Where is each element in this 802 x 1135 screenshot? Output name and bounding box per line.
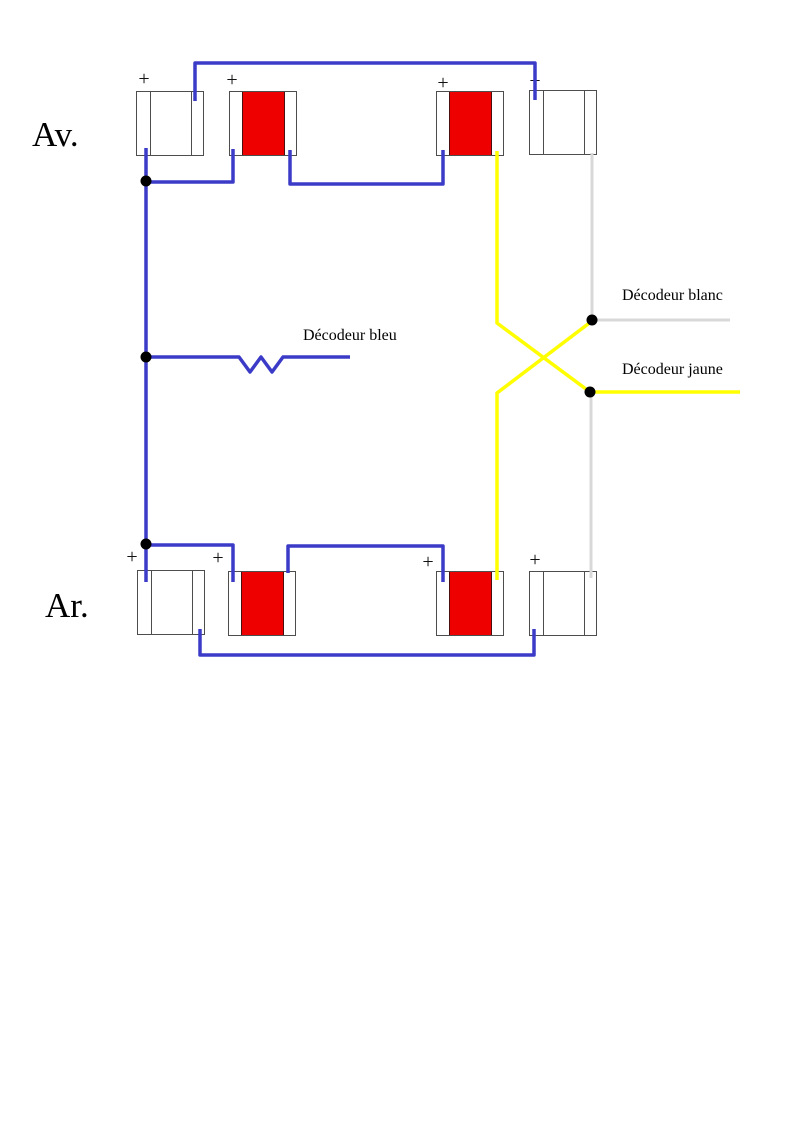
lamp-red-filament — [449, 572, 492, 635]
lamp-front-red-left — [229, 91, 297, 156]
wires-layer — [0, 0, 802, 1135]
plus-mark-front-white-left: + — [138, 69, 149, 89]
lamp-rear-red-left — [228, 571, 296, 636]
wire-rear-red-to-white-junction — [497, 321, 592, 580]
lamp-red-filament — [241, 572, 284, 635]
lamp-rear-red-right — [436, 571, 504, 636]
wiring-diagram: Av. Ar. Décodeur bleu Décodeur blanc Déc… — [0, 0, 802, 1135]
lamp-rear-right-white — [529, 571, 597, 636]
lamp-red-filament — [242, 92, 285, 155]
lamp-terminal-line — [584, 91, 585, 154]
decoder-blue-label: Décodeur bleu — [303, 327, 397, 345]
decoder-white-label: Décodeur blanc — [622, 287, 723, 305]
wire-rear-red-to-red — [288, 546, 443, 582]
plus-mark-rear-white-left: + — [126, 547, 137, 567]
junction-dot-decoder-yellow — [585, 387, 596, 398]
junction-dot-middle — [141, 352, 152, 363]
lamp-terminal-line — [151, 571, 152, 634]
lamp-front-left-white — [136, 91, 204, 156]
lamp-front-red-right — [436, 91, 504, 156]
lamp-terminal-line — [584, 572, 585, 635]
lamp-front-right-white — [529, 90, 597, 155]
plus-mark-front-white-right: + — [529, 71, 540, 91]
lamp-terminal-line — [192, 571, 193, 634]
plus-mark-rear-red-left: + — [212, 548, 223, 568]
wire-decoder-blue-with-resistor — [146, 357, 350, 372]
front-section-label: Av. — [32, 116, 79, 155]
lamp-terminal-line — [191, 92, 192, 155]
lamp-terminal-line — [543, 572, 544, 635]
lamp-rear-left-white — [137, 570, 205, 635]
lamp-terminal-line — [150, 92, 151, 155]
plus-mark-rear-white-right: + — [529, 550, 540, 570]
plus-mark-front-red-right: + — [437, 73, 448, 93]
lamp-red-filament — [449, 92, 492, 155]
junction-dot-front — [141, 176, 152, 187]
lamp-terminal-line — [543, 91, 544, 154]
rear-section-label: Ar. — [45, 587, 89, 626]
plus-mark-rear-red-right: + — [422, 552, 433, 572]
decoder-yellow-label: Décodeur jaune — [622, 361, 723, 379]
wire-decoder-yellow-from-front-red — [497, 151, 740, 392]
wire-front-red-to-red — [290, 150, 443, 184]
junction-dot-decoder-white — [587, 315, 598, 326]
junction-dot-rear — [141, 539, 152, 550]
plus-mark-front-red-left: + — [226, 70, 237, 90]
